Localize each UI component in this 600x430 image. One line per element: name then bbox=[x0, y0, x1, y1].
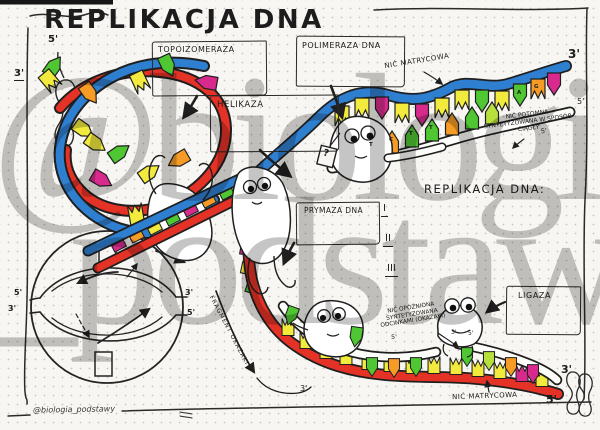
chromosome-doodle-right bbox=[567, 372, 592, 416]
arrow-ligase bbox=[487, 302, 505, 312]
bubble-left-5: 5' bbox=[14, 288, 22, 297]
helicase-character bbox=[232, 167, 295, 294]
nick-end-5: 5' bbox=[468, 331, 473, 338]
replication-bubble-diagram bbox=[30, 231, 187, 383]
base-letter-c: C bbox=[389, 137, 393, 143]
helix-end-3: 3' bbox=[14, 68, 24, 81]
fragment-b-end-3: 3' bbox=[561, 364, 572, 377]
blue-end-3: 3' bbox=[568, 48, 580, 62]
daughter-end-5: 5' bbox=[577, 97, 584, 106]
arrow-topoisomerase bbox=[184, 96, 197, 117]
primase-label: PRYMAZA DNA bbox=[304, 207, 363, 216]
leading-note-5: 5' bbox=[541, 128, 548, 136]
scanned-notes-page: REPLIKACJA DNA TOPOIZOMERAZA POLIMERAZA … bbox=[0, 0, 600, 430]
notes-item-1: I bbox=[381, 203, 388, 217]
ligase-label: LIGAZA bbox=[518, 291, 551, 300]
base-letter-t1: T bbox=[369, 142, 373, 148]
nick-end-3: 3' bbox=[451, 330, 456, 337]
page-title: REPLIKACJA DNA bbox=[44, 6, 324, 36]
bubble-left-3: 3' bbox=[8, 304, 16, 313]
scan-edge-strip bbox=[0, 0, 113, 5]
helix-end-5: 5' bbox=[48, 34, 58, 46]
base-letter-t2: T bbox=[409, 131, 413, 137]
arrow-leading-note bbox=[513, 139, 524, 148]
topoisomerase-label: TOPOIZOMERAZA bbox=[158, 45, 235, 54]
base-letter-a: A bbox=[517, 90, 521, 96]
notes-item-2: II bbox=[383, 233, 393, 247]
author-signature: @biologia_podstawy bbox=[33, 404, 115, 415]
bubble-right-5: 5' bbox=[187, 308, 195, 317]
base-letter-t3: T bbox=[429, 125, 433, 131]
notes-item-3: III bbox=[385, 263, 398, 277]
red-end-5: 5' bbox=[546, 394, 557, 407]
okazaki-curl-3: 3' bbox=[300, 384, 307, 393]
fragment-a-end-5: 5' bbox=[391, 334, 397, 341]
helicase-label: HELIKAZA bbox=[217, 101, 264, 111]
base-letter-g: G bbox=[534, 84, 539, 90]
notes-heading: REPLIKACJA DNA: bbox=[424, 183, 545, 196]
bubble-right-3: 3' bbox=[185, 288, 193, 297]
polymerase-label: POLIMERAZA DNA bbox=[302, 41, 381, 50]
origin-box-bottom bbox=[95, 352, 112, 376]
arrow-template-top bbox=[424, 72, 442, 84]
